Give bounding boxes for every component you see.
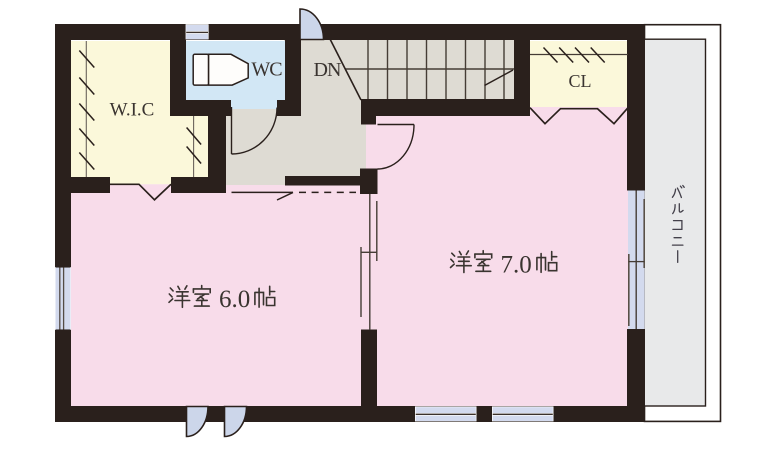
- svg-text:W.I.C: W.I.C: [110, 100, 155, 121]
- svg-text:DN: DN: [314, 59, 341, 81]
- svg-text:6.0: 6.0: [219, 286, 250, 313]
- svg-text:7.0: 7.0: [501, 251, 532, 278]
- svg-text:CL: CL: [568, 71, 591, 91]
- svg-text:WC: WC: [251, 59, 282, 81]
